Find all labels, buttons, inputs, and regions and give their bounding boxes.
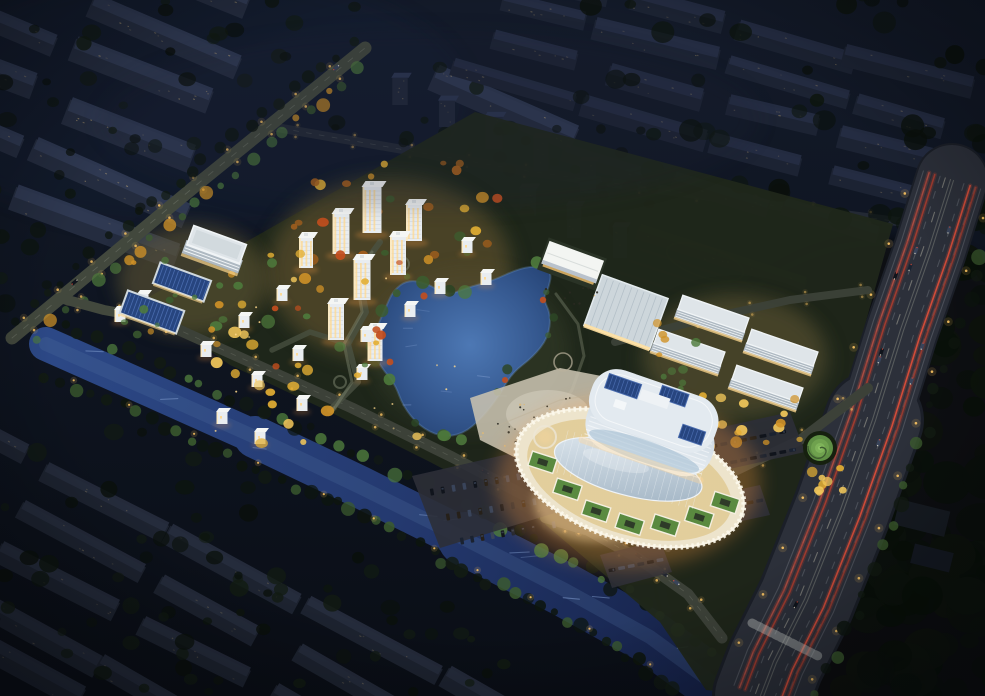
layer-effects xyxy=(0,0,985,696)
scene-svg: Night aerial rendering of a lit campus d… xyxy=(0,0,985,696)
architectural-rendering: Night aerial rendering of a lit campus d… xyxy=(0,0,985,696)
